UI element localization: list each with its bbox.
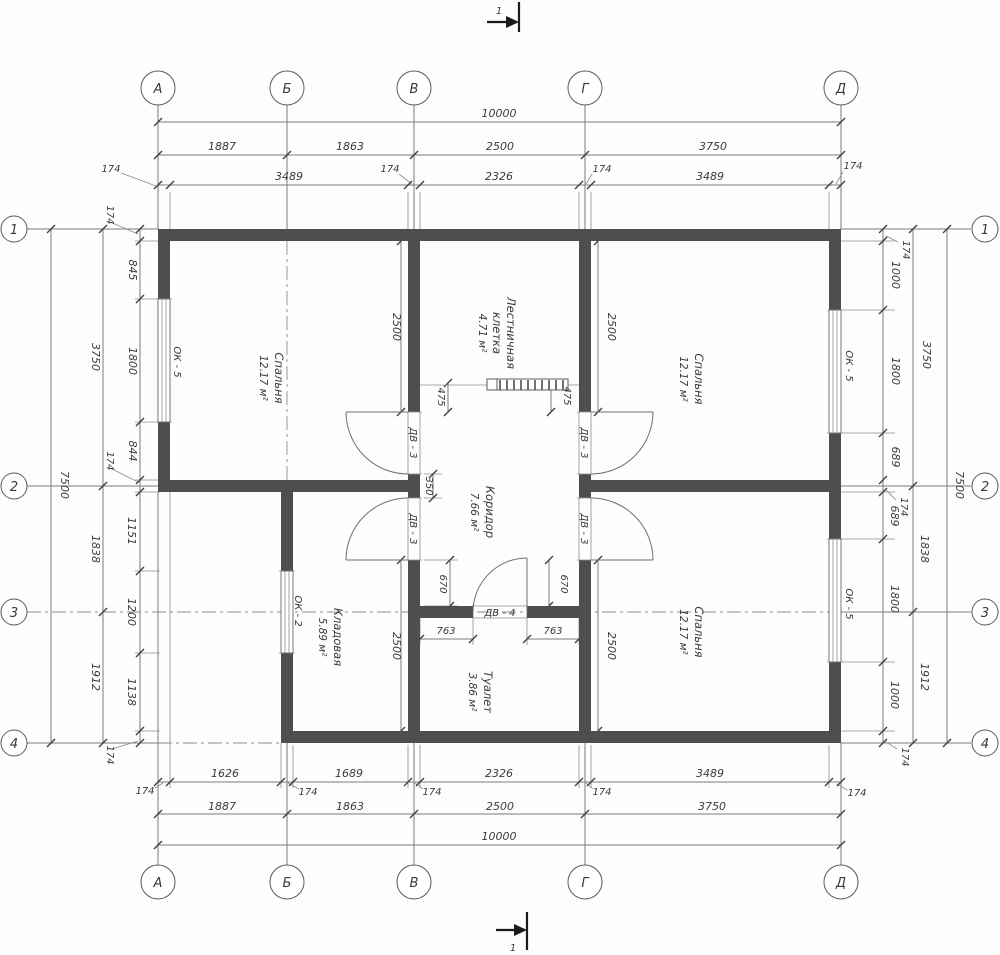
dim-right-174-row2: 174 [898, 497, 909, 516]
section-mark-top-lines [487, 2, 519, 32]
axis-label-bottom-a: А [153, 876, 163, 891]
dim-stair-475-right: 475 [561, 386, 572, 405]
door-swing-bedroom-tl [346, 412, 408, 474]
leaders-top-174 [121, 172, 843, 186]
dim-room-depth-tr: 2500 [605, 313, 618, 341]
dim-top-span-1887: 1887 [208, 140, 236, 153]
room-name-corridor: Коридор [483, 486, 497, 538]
dim-bottom-span-1863: 1863 [336, 800, 364, 813]
axis-label-bottom-d: Д [835, 876, 846, 891]
room-area-toilet: 3.86 м² [466, 673, 478, 713]
dim-bottom-span-1887: 1887 [208, 800, 236, 813]
dim-top-inner-2326: 2326 [485, 170, 513, 183]
wall-row2-left [158, 480, 420, 492]
wall-exterior-right-2 [829, 433, 841, 539]
door-swing-storage [346, 498, 408, 560]
room-label-corridor: Коридор 7.66 м² [468, 486, 497, 538]
dim-right-689-upper: 689 [889, 447, 902, 468]
axis-label-right-3: 3 [981, 606, 989, 621]
dim-interior-lines [420, 383, 579, 639]
dim-left-1151: 1151 [125, 517, 138, 545]
axis-lines-right [841, 229, 971, 743]
dim-left-1800: 1800 [126, 347, 139, 375]
dim-left-174-top: 174 [104, 205, 115, 224]
wall-v-lower [408, 560, 420, 731]
room-name-staircase-1: Лестничная [504, 296, 518, 369]
dim-right-174-top: 174 [900, 240, 911, 259]
ext-bottom [170, 492, 829, 788]
dim-left-174-row2: 174 [104, 451, 115, 470]
room-name-storage: Кладовая [331, 608, 345, 666]
dim-door-670-left: 670 [437, 574, 448, 593]
dim-top-span-1863: 1863 [336, 140, 364, 153]
room-area-storage: 5.89 м² [316, 618, 328, 658]
section-arrow-bottom-icon [514, 924, 527, 936]
dim-right-1800-upper: 1800 [889, 357, 902, 385]
window-label-ok5-right-upper: ОК - 5 [843, 350, 854, 381]
axis-bubbles-top: А Б В Г Д [141, 71, 858, 105]
axis-label-right-4: 4 [981, 737, 989, 752]
dim-top-174-a: 174 [101, 164, 120, 175]
wall-v-upper [408, 241, 420, 412]
axis-label-top-d: Д [835, 82, 846, 97]
room-label-storage: Кладовая 5.89 м² [316, 608, 345, 666]
dim-bottom-span-2500: 2500 [486, 800, 514, 813]
dim-right-1000-lower: 1000 [888, 681, 901, 709]
section-number-top: 1 [496, 6, 502, 17]
dim-labels-left: 845 1800 844 1151 1200 1138 174 174 174 … [58, 205, 139, 764]
section-number-bottom: 1 [510, 943, 516, 954]
wall-exterior-left-upper [158, 241, 170, 299]
dim-right-mid-1912: 1912 [918, 663, 931, 691]
room-area-bedroom-br: 12.17 м² [677, 609, 689, 655]
dim-room-depth-tl: 2500 [390, 313, 403, 341]
window-label-ok5-right-lower: ОК - 5 [843, 588, 854, 619]
door-swing-toilet [473, 558, 527, 612]
door-label-dv3-g-upper: ДВ - 3 [578, 426, 589, 458]
axis-label-top-b: Б [283, 82, 292, 97]
room-area-staircase: 4.71 м² [476, 314, 488, 354]
dim-left-mid-1912: 1912 [89, 663, 102, 691]
wall-exterior-right-3 [829, 662, 841, 743]
room-name-staircase-2: клетка [490, 312, 504, 354]
dim-bottom-inner-1626: 1626 [211, 767, 239, 780]
door-label-dv3-g-lower: ДВ - 3 [578, 512, 589, 544]
door-swing-bedroom-br [591, 498, 653, 560]
dim-labels-bottom: 1626 1689 2326 3489 174 174 174 174 174 … [135, 767, 866, 843]
dim-left-174-row4: 174 [104, 745, 115, 764]
dim-labels-right: 1000 1800 689 689 1800 1000 174 174 174 … [888, 240, 966, 766]
floor-plan-drawing: 1 1 А Б В Г Д А Б В Г Д 1 2 3 [0, 0, 1000, 955]
dim-bottom-174-g: 174 [592, 787, 611, 798]
dim-right-mid-3750: 3750 [920, 341, 933, 369]
wall-v-middle [408, 474, 420, 498]
wall-storage-left-lower [281, 653, 293, 731]
axis-label-bottom-v: В [410, 876, 419, 891]
dim-top-inner-3489-left: 3489 [275, 170, 303, 183]
leaders-bottom-174 [155, 783, 847, 790]
wall-row2-right [591, 480, 829, 492]
axis-label-left-1: 1 [10, 223, 18, 238]
window-ok5-right-upper [829, 310, 841, 433]
dim-toilet-763-left: 763 [436, 626, 455, 637]
dim-bottom-inner-1689: 1689 [335, 767, 363, 780]
wall-toilet-right [527, 606, 579, 618]
axis-bubbles-bottom: А Б В Г Д [141, 865, 858, 899]
window-ok2-storage [281, 571, 293, 653]
wall-g-upper [579, 241, 591, 412]
axis-label-right-1: 1 [981, 223, 989, 238]
dim-bottom-174-d: 174 [847, 788, 866, 799]
ticks-interior [416, 379, 583, 643]
dim-left-1138: 1138 [125, 678, 138, 706]
axis-label-left-3: 3 [10, 606, 18, 621]
room-label-staircase: Лестничная клетка 4.71 м² [476, 296, 518, 369]
wall-exterior-right-1 [829, 241, 841, 310]
dim-top-span-2500: 2500 [486, 140, 514, 153]
wall-storage-left-upper [281, 480, 293, 571]
wall-exterior-bottom [281, 731, 841, 743]
section-mark-top: 1 [487, 2, 519, 32]
dim-top-174-v: 174 [380, 164, 399, 175]
dim-room-depth-storage: 2500 [390, 632, 403, 660]
dim-top-174-d: 174 [843, 161, 862, 172]
room-label-toilet: Туалет 3.86 м² [466, 671, 495, 713]
dim-labels-top: 10000 1887 1863 2500 3750 3489 2326 3489… [101, 107, 862, 183]
dim-bottom-174-v: 174 [422, 787, 441, 798]
axis-label-left-2: 2 [10, 480, 18, 495]
dim-left-844: 844 [126, 441, 139, 462]
axis-label-left-4: 4 [10, 737, 18, 752]
section-mark-bottom: 1 [496, 912, 527, 954]
leaders-right-174 [886, 236, 898, 749]
doors [346, 412, 653, 612]
door-face-lines [408, 412, 591, 560]
axis-bubbles-right: 1 2 3 4 [972, 216, 998, 756]
axis-label-bottom-b: Б [283, 876, 292, 891]
wall-toilet-left [420, 606, 473, 618]
dim-toilet-763-right: 763 [543, 626, 562, 637]
room-label-bedroom-br: Спальня 12.17 м² [677, 606, 706, 657]
dim-right-mid-1838: 1838 [918, 535, 931, 563]
dim-right-1800-lower: 1800 [888, 585, 901, 613]
room-name-bedroom-tr: Спальня [692, 353, 706, 404]
dim-left-mid-3750: 3750 [89, 343, 102, 371]
room-area-corridor: 7.66 м² [468, 493, 480, 533]
dim-left-845: 845 [126, 260, 139, 281]
section-arrow-top-icon [506, 16, 519, 28]
window-ok5-right-lower [829, 539, 841, 662]
door-label-dv3-v-upper: ДВ - 3 [407, 426, 418, 458]
ext-interior [420, 474, 579, 645]
door-swing-bedroom-tr [591, 412, 653, 474]
room-area-bedroom-tr: 12.17 м² [677, 356, 689, 402]
dim-bottom-inner-3489: 3489 [696, 767, 724, 780]
dim-overall-height-left: 7500 [58, 471, 71, 499]
axis-lines-top [158, 105, 841, 229]
dim-corridor-350: 350 [423, 476, 434, 495]
stair-start-square [487, 379, 497, 390]
axis-bubbles-left: 1 2 3 4 [1, 216, 27, 756]
dim-bottom-174-b: 174 [298, 787, 317, 798]
window-label-ok2: ОК - 2 [292, 595, 303, 626]
dim-top-inner-3489-right: 3489 [696, 170, 724, 183]
axis-label-right-2: 2 [981, 480, 989, 495]
dim-bottom-174-a: 174 [135, 786, 154, 797]
ext-top [170, 192, 829, 229]
dim-top-174-g: 174 [592, 164, 611, 175]
floor-plan-svg: 1 1 А Б В Г Д А Б В Г Д 1 2 3 [0, 0, 1000, 955]
dim-bottom-span-3750: 3750 [698, 800, 726, 813]
wall-g-middle [579, 474, 591, 498]
room-name-bedroom-tl: Спальня [272, 352, 286, 403]
dim-left-1200: 1200 [125, 598, 138, 626]
axis-label-top-a: А [153, 82, 163, 97]
door-label-dv4: ДВ - 4 [483, 608, 515, 619]
room-name-bedroom-br: Спальня [692, 606, 706, 657]
dim-room-depth-br: 2500 [605, 632, 618, 660]
dim-overall-width-bottom: 10000 [482, 830, 517, 843]
window-label-ok5-left: ОК - 5 [171, 346, 182, 377]
dim-right-174-row4: 174 [899, 747, 910, 766]
wall-exterior-top [158, 229, 841, 241]
dim-door-670-right: 670 [558, 574, 569, 593]
axis-label-top-v: В [410, 82, 419, 97]
dim-stair-475-left: 475 [435, 387, 446, 406]
dim-right-1000-upper: 1000 [889, 261, 902, 289]
walls [158, 229, 841, 743]
room-label-bedroom-tr: Спальня 12.17 м² [677, 353, 706, 404]
dim-overall-height-right: 7500 [953, 471, 966, 499]
dim-overall-width-top: 10000 [482, 107, 517, 120]
room-area-bedroom-tl: 12.17 м² [257, 355, 269, 401]
dim-top-span-3750: 3750 [699, 140, 727, 153]
window-ok5-left [158, 299, 170, 422]
dim-bottom-inner-2326: 2326 [485, 767, 513, 780]
room-label-bedroom-tl: Спальня 12.17 м² [257, 352, 286, 403]
dim-left-mid-1838: 1838 [89, 535, 102, 563]
room-name-toilet: Туалет [481, 671, 495, 713]
wall-g-lower [579, 560, 591, 731]
door-label-dv3-v-lower: ДВ - 3 [407, 512, 418, 544]
